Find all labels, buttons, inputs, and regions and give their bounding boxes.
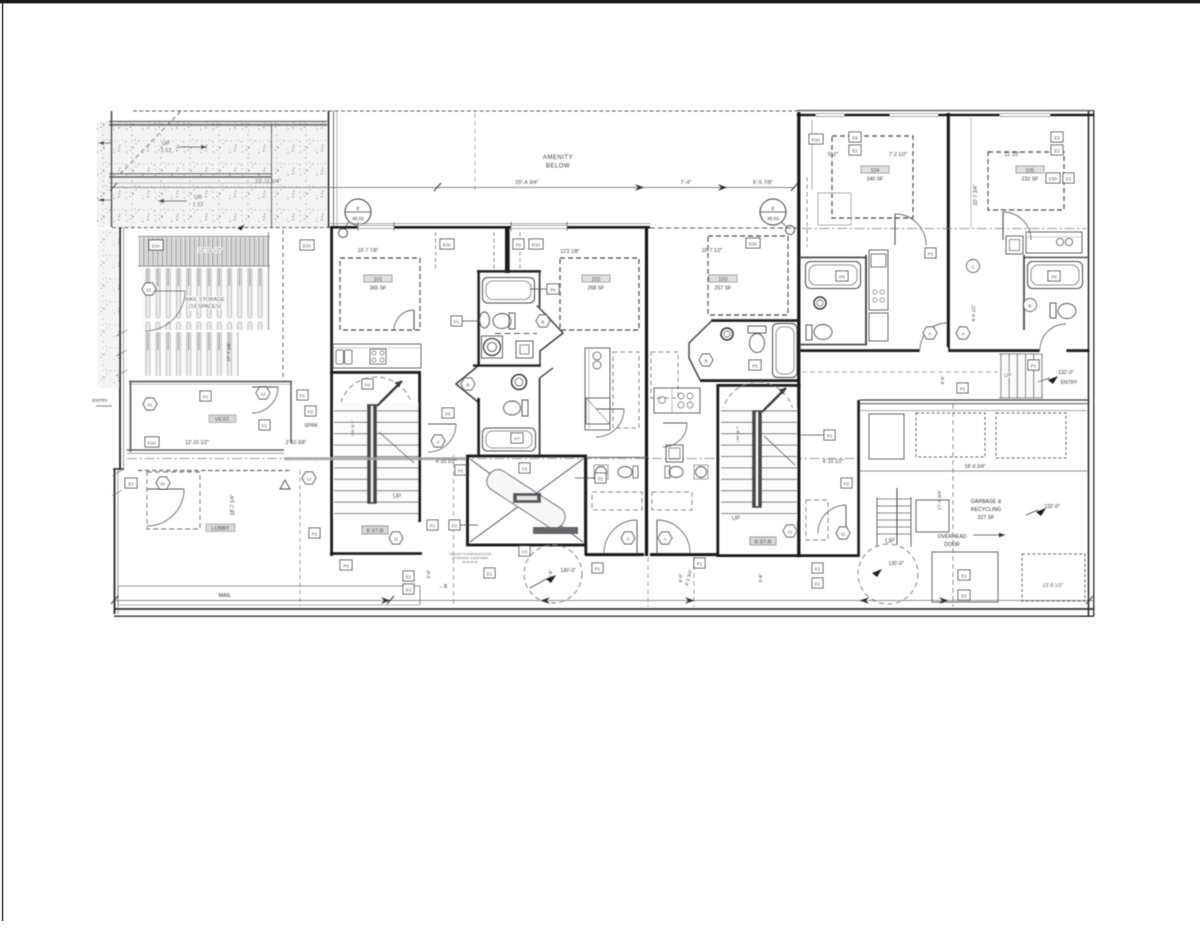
svg-text:B ST-B: B ST-B [754, 540, 771, 546]
svg-text:45.02: 45.02 [352, 216, 364, 221]
svg-text:12'2 1/8": 12'2 1/8" [560, 249, 580, 255]
svg-text:P2: P2 [844, 482, 850, 487]
svg-text:P2: P2 [598, 477, 604, 482]
svg-text:13'-8 1/2": 13'-8 1/2" [1042, 583, 1063, 589]
svg-text:E1: E1 [487, 572, 493, 577]
svg-text:B: B [705, 358, 708, 363]
svg-text:P2: P2 [430, 524, 436, 529]
svg-text:P2: P2 [960, 387, 966, 392]
svg-text:4'-10 1/2": 4'-10 1/2" [435, 459, 456, 465]
svg-text:240 SF: 240 SF [867, 177, 884, 183]
svg-text:4'-6": 4'-6" [548, 569, 553, 579]
svg-text:12'-10 1/2": 12'-10 1/2" [185, 440, 209, 446]
svg-text:B: B [1029, 303, 1032, 308]
svg-text:P7: P7 [514, 437, 520, 442]
svg-text:P6: P6 [839, 275, 845, 280]
svg-text:P1: P1 [203, 395, 209, 400]
svg-text:6'-5 7/8": 6'-5 7/8" [753, 180, 773, 186]
svg-text:P1: P1 [454, 320, 460, 325]
svg-text:P1: P1 [458, 469, 464, 474]
svg-text:E: E [356, 206, 359, 211]
svg-text:01: 01 [161, 481, 166, 486]
svg-text:F3: F3 [522, 467, 528, 472]
svg-text:132'-0": 132'-0" [1058, 370, 1074, 376]
svg-text:E3A: E3A [152, 244, 160, 249]
svg-text:P6: P6 [1051, 275, 1057, 280]
svg-text:5'-2": 5'-2" [828, 152, 838, 158]
svg-text:A: A [437, 439, 440, 444]
svg-text:10'-7 1/2": 10'-7 1/2" [701, 248, 722, 254]
svg-text:E8: E8 [852, 136, 858, 141]
svg-text:RECYCLING: RECYCLING [971, 507, 1001, 513]
svg-text:F3: F3 [522, 550, 528, 555]
svg-text:4'-6": 4'-6" [940, 375, 945, 385]
svg-text:E3R: E3R [1049, 177, 1058, 182]
svg-text:E3A: E3A [812, 138, 820, 143]
svg-text:18'-9 3/4": 18'-9 3/4" [964, 464, 985, 470]
svg-text:UP: UP [393, 494, 401, 500]
svg-text:327 SF: 327 SF [978, 515, 995, 521]
svg-text:A: A [962, 331, 965, 336]
svg-text:E2: E2 [1054, 149, 1060, 154]
svg-text:A: A [627, 536, 630, 541]
svg-text:11: 11 [841, 531, 846, 536]
svg-text:E3A: E3A [148, 441, 156, 446]
svg-text:UP: UP [194, 195, 202, 201]
svg-text:105: 105 [1026, 168, 1035, 174]
svg-text:15'-4 1/4": 15'-4 1/4" [226, 342, 231, 362]
svg-text:E1: E1 [406, 575, 412, 580]
svg-text:232 SF: 232 SF [1022, 177, 1039, 183]
svg-text:B: B [542, 319, 545, 324]
svg-text:104: 104 [871, 168, 880, 174]
svg-text:P6: P6 [752, 364, 758, 369]
svg-text:P2: P2 [827, 434, 833, 439]
svg-text:1:12: 1:12 [193, 202, 204, 208]
svg-text:P6: P6 [550, 288, 556, 293]
svg-text:132'-0": 132'-0" [1044, 504, 1060, 510]
svg-text:VEST.: VEST. [215, 417, 230, 423]
svg-text:101: 101 [374, 277, 383, 283]
svg-text:18'-7 1/4": 18'-7 1/4" [230, 494, 236, 515]
svg-text:SPRK: SPRK [304, 423, 318, 429]
svg-text:E2: E2 [815, 582, 821, 587]
svg-text:E3: E3 [406, 588, 412, 593]
svg-text:B ST-B: B ST-B [366, 529, 383, 535]
svg-text:20'-4 3/4": 20'-4 3/4" [515, 180, 538, 186]
svg-text:ENTRY: ENTRY [1061, 380, 1079, 386]
svg-text:E1: E1 [961, 574, 967, 579]
svg-text:11: 11 [394, 536, 399, 541]
svg-text:3'-6": 3'-6" [758, 573, 763, 583]
svg-text:OVERHEAD: OVERHEAD [937, 534, 966, 540]
svg-text:LOBBY: LOBBY [212, 526, 230, 532]
svg-text:BELOW: BELOW [546, 164, 570, 170]
svg-text:103: 103 [719, 277, 728, 283]
svg-text:P1: P1 [262, 424, 268, 429]
svg-text:P6: P6 [445, 412, 451, 417]
svg-text:45.02: 45.02 [767, 216, 779, 221]
svg-text:P6: P6 [343, 564, 349, 569]
svg-text:P1: P1 [300, 394, 306, 399]
svg-text:P3: P3 [365, 383, 371, 388]
svg-text:MAIL: MAIL [219, 593, 232, 599]
svg-text:A: A [929, 331, 932, 336]
svg-text:6'-5 1/2": 6'-5 1/2" [971, 304, 976, 321]
svg-text:UP: UP [1004, 373, 1012, 379]
svg-text:E2: E2 [852, 149, 858, 154]
svg-text:19'-7 7/8": 19'-7 7/8" [357, 248, 378, 254]
svg-text:P1: P1 [697, 562, 703, 567]
svg-text:365 SF: 365 SF [370, 286, 387, 292]
svg-text:12: 12 [261, 391, 266, 396]
svg-text:102: 102 [592, 277, 601, 283]
svg-text:23'-11 1/4": 23'-11 1/4" [255, 179, 281, 185]
svg-text:7'-2 1/2": 7'-2 1/2" [889, 152, 908, 158]
svg-text:P2: P2 [452, 524, 458, 529]
svg-text:E3A: E3A [443, 243, 451, 248]
svg-text:16R @ 7": 16R @ 7" [736, 425, 740, 442]
svg-text:01: 01 [148, 402, 153, 407]
svg-text:4'-0": 4'-0" [678, 573, 683, 583]
svg-text:P1: P1 [1031, 364, 1037, 369]
svg-text:E3A: E3A [303, 244, 311, 249]
svg-text:C: C [971, 264, 974, 269]
svg-text:16R @ 7": 16R @ 7" [351, 419, 355, 436]
svg-text:10'-7 3/4": 10'-7 3/4" [973, 184, 979, 205]
svg-text:DOOR: DOOR [944, 542, 960, 548]
svg-text:130'-0": 130'-0" [888, 561, 904, 567]
svg-text:P1: P1 [595, 567, 601, 572]
svg-text:E3A: E3A [532, 243, 540, 248]
svg-text:UP: UP [162, 141, 170, 147]
svg-text:E3A: E3A [749, 242, 757, 247]
svg-text:E3: E3 [1054, 136, 1060, 141]
svg-text:46 IN 54 IN: 46 IN 54 IN [462, 560, 477, 564]
svg-text:BIKE STORAGE: BIKE STORAGE [185, 297, 225, 303]
svg-text:2'-10 3/8": 2'-10 3/8" [285, 440, 306, 446]
svg-text:←B: ←B [439, 584, 448, 590]
svg-text:UP: UP [732, 516, 740, 522]
svg-text:E2: E2 [961, 594, 967, 599]
svg-text:A: A [664, 536, 667, 541]
svg-text:3'-0": 3'-0" [426, 569, 431, 579]
svg-text:GARBAGE &: GARBAGE & [971, 499, 1002, 505]
svg-text:P2: P2 [312, 532, 318, 537]
svg-text:E2: E2 [1066, 177, 1072, 182]
svg-text:P1: P1 [928, 252, 934, 257]
svg-text:E1: E1 [128, 482, 134, 487]
svg-text:E1: E1 [815, 567, 821, 572]
svg-text:E: E [771, 206, 774, 211]
svg-text:1:12: 1:12 [161, 148, 172, 154]
svg-text:12: 12 [307, 476, 312, 481]
svg-text:(19 SPACES): (19 SPACES) [189, 304, 222, 310]
svg-text:11'-10": 11'-10" [1004, 152, 1019, 158]
svg-text:B: B [467, 382, 470, 387]
svg-text:ENTRY: ENTRY [92, 398, 108, 403]
svg-text:11: 11 [788, 529, 793, 534]
svg-text:AMENITY: AMENITY [543, 155, 573, 161]
svg-text:P1: P1 [516, 243, 522, 248]
svg-text:4'-10 1/2": 4'-10 1/2" [822, 459, 843, 465]
svg-text:130'-0": 130'-0" [560, 568, 576, 574]
svg-text:257 SF: 257 SF [715, 286, 732, 292]
svg-text:7'-4": 7'-4" [681, 180, 692, 186]
svg-text:P2: P2 [308, 410, 314, 415]
svg-text:268 SF: 268 SF [588, 286, 605, 292]
svg-text:12'-10 1/2": 12'-10 1/2" [198, 248, 222, 254]
svg-text:01: 01 [147, 287, 152, 292]
